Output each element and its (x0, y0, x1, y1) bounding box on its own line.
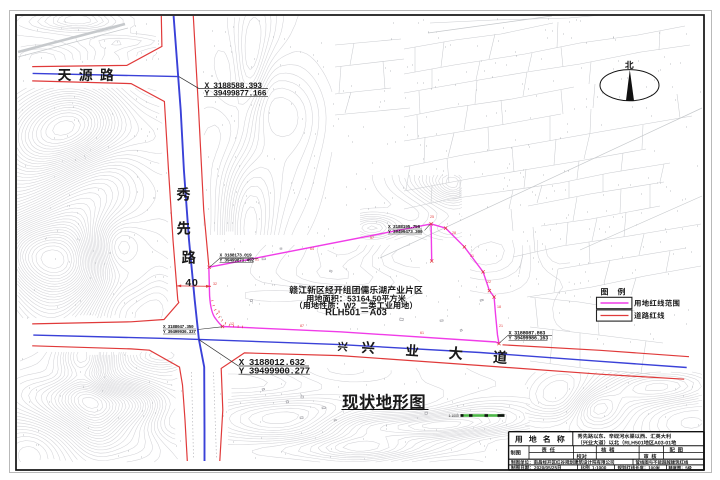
svg-text:9: 9 (218, 310, 220, 314)
svg-text:18: 18 (497, 305, 501, 309)
svg-text:Y 39499877.166: Y 39499877.166 (205, 89, 267, 98)
svg-text:87: 87 (300, 324, 304, 328)
svg-text:Y 39499900.277: Y 39499900.277 (239, 365, 310, 376)
svg-text:12: 12 (230, 322, 234, 326)
svg-text:32: 32 (213, 282, 217, 286)
svg-text:61: 61 (420, 331, 424, 335)
svg-text:40: 40 (185, 277, 198, 289)
svg-text:64: 64 (310, 247, 314, 251)
svg-text:22: 22 (487, 280, 491, 284)
svg-text:21: 21 (499, 324, 503, 328)
svg-text:28: 28 (452, 231, 456, 235)
svg-text:31: 31 (470, 254, 474, 258)
svg-text:81: 81 (255, 258, 259, 262)
svg-text:1:1000: 1:1000 (449, 414, 459, 418)
svg-text:25: 25 (430, 215, 434, 219)
svg-text:57: 57 (370, 236, 374, 240)
